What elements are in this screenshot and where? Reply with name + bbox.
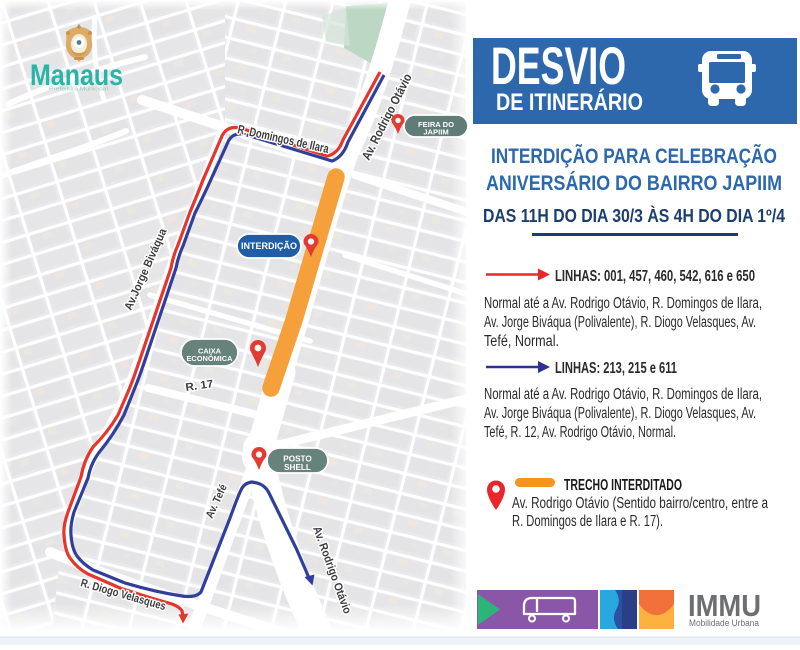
svg-text:Av. Jorge Biváqua (Polivalente: Av. Jorge Biváqua (Polivalente), R. Diog… [484,405,756,422]
svg-text:DE ITINERÁRIO: DE ITINERÁRIO [496,88,643,116]
svg-text:Av. Rodrigo Otávio (Sentido ba: Av. Rodrigo Otávio (Sentido bairro/centr… [512,495,768,512]
svg-text:Normal até a Av. Rodrigo Otávi: Normal até a Av. Rodrigo Otávio, R. Domi… [484,295,762,312]
svg-text:ECONÔMICA: ECONÔMICA [187,354,234,363]
svg-text:INTERDIÇÃO: INTERDIÇÃO [241,241,297,251]
svg-text:Tefé, R. 12, Av. Rodrigo Otávi: Tefé, R. 12, Av. Rodrigo Otávio, Normal. [484,424,676,441]
svg-text:TRECHO INTERDITADO: TRECHO INTERDITADO [564,477,682,494]
svg-text:Av. Jorge Biváqua (Polivalente: Av. Jorge Biváqua (Polivalente), R. Diog… [484,314,756,331]
svg-text:DESVIO: DESVIO [491,37,626,96]
svg-text:ANIVERSÁRIO DO BAIRRO JAPIIM: ANIVERSÁRIO DO BAIRRO JAPIIM [486,172,782,195]
svg-text:LINHAS: 213, 215 e 611: LINHAS: 213, 215 e 611 [555,360,677,377]
svg-text:JAPIIM: JAPIIM [423,128,448,137]
svg-text:Tefé, Normal.: Tefé, Normal. [484,333,559,350]
svg-text:Mobilidade Urbana: Mobilidade Urbana [689,618,759,628]
svg-text:DAS 11H DO DIA 30/3 ÀS 4H DO: DAS 11H DO DIA 30/3 ÀS 4H DO DIA 1º/4 [483,205,785,226]
svg-text:SHELL: SHELL [284,463,311,472]
svg-text:R. Domingos de Ilara e R. 17).: R. Domingos de Ilara e R. 17). [512,513,663,530]
svg-text:Normal até a Av. Rodrigo Otávi: Normal até a Av. Rodrigo Otávio, R. Domi… [484,386,762,403]
svg-text:Prefeitura Municipal: Prefeitura Municipal [49,87,108,93]
svg-text:INTERDIÇÃO PARA CELEBRAÇÃO: INTERDIÇÃO PARA CELEBRAÇÃO [491,145,777,168]
svg-text:LINHAS: 001, 457, 460, 542, 61: LINHAS: 001, 457, 460, 542, 616 e 650 [555,268,755,285]
